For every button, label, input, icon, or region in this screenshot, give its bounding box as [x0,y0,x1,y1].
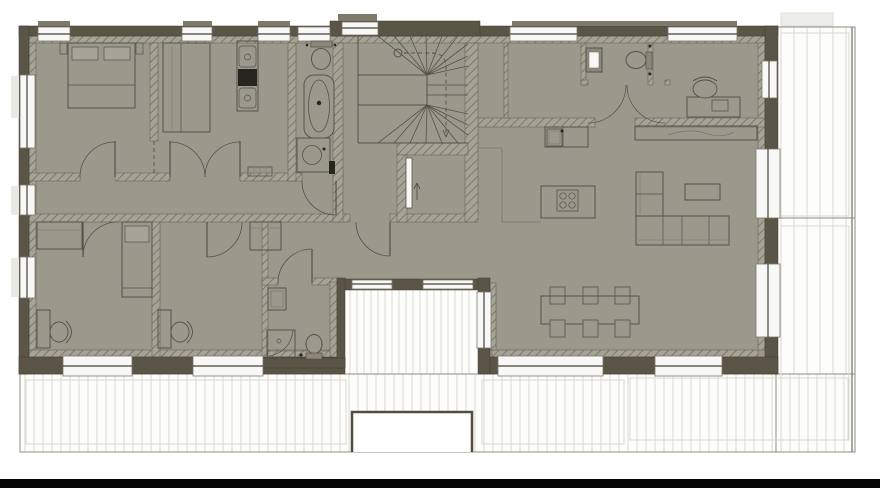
scale-bar [0,479,880,488]
recess-deck [345,290,478,374]
dining-chair [550,320,565,337]
roof-tab [258,21,290,26]
toilet-tank [311,41,332,47]
floor-plan-canvas [0,0,880,490]
wc-wall-south-b [665,80,670,85]
smallbath-east-wall [337,278,345,368]
smallbath-wall-top-a [262,278,278,285]
roof-tab [512,21,577,26]
roof-tab-tower [338,14,377,21]
towel-radiator [329,161,335,174]
roof-overhang [781,13,833,26]
wc-wall-south-a [581,80,588,85]
window-sill [11,186,19,215]
deck-stair-notch [352,412,472,452]
corridor-wall-a [29,173,80,181]
wall-stair-east [465,43,478,222]
hall-wall-a [478,118,595,127]
corridor-wall-b [115,173,170,181]
scale-bar [0,479,880,488]
dining-chair [615,320,630,337]
vanity-counter [297,138,330,172]
roof-tab [183,21,212,26]
closet-door [406,158,412,208]
office-chair [171,322,189,342]
dining-chair [583,320,598,337]
toilet-bowl [626,52,646,69]
fixture-dot [649,73,652,76]
stair-closet-wall-top [397,143,468,155]
roof-tab [572,21,737,26]
smallbath-south-wall [262,358,345,368]
fixture-dot [306,44,309,47]
office-chair [50,322,68,342]
pillow [72,47,98,60]
smallbath-wall-right [330,282,337,358]
corridor-south-wall-a [29,214,350,222]
fixture-dot [334,44,337,47]
wall-bath-stair [333,43,343,222]
office-chair [693,80,717,98]
toilet-tank [646,52,652,69]
pillow [125,226,149,242]
window-sill [11,76,19,118]
fixture-dot [299,353,302,356]
bathtub-drain [317,101,321,105]
wall-room3-room4 [152,222,160,357]
roof-tab [38,21,70,26]
stair-closet-wall-left [397,155,407,222]
fixture-dot [649,45,652,48]
toilet-bowl [306,335,322,354]
window-sill [11,258,19,297]
faucet [323,148,326,151]
toilet-bowl [312,49,331,70]
wc-wall-west [581,43,586,85]
wall-bed2-bath [288,43,296,181]
entry-niche-wall [504,43,508,118]
floor-plan [0,0,880,490]
wall-bed1-bed2 [150,43,158,141]
faucet [561,130,564,133]
pillow [104,47,130,60]
toilet-tank [306,353,322,359]
wc-basin-inner [589,52,599,68]
cooktop-appliance [238,69,257,86]
